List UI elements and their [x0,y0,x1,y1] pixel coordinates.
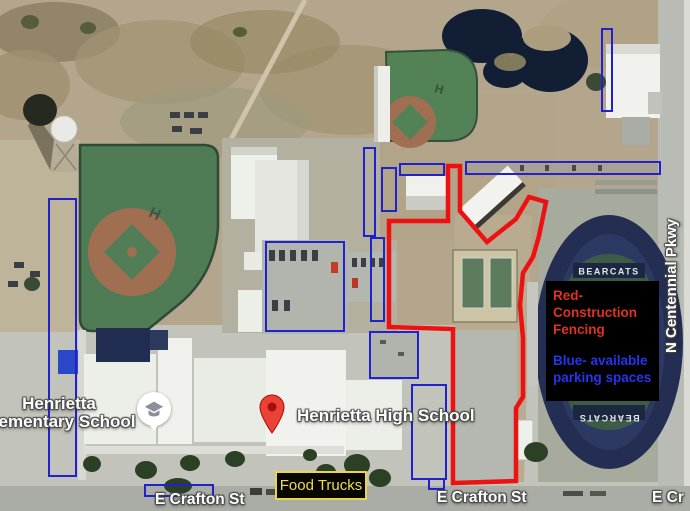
parking-annotation-rect [265,241,345,332]
parking-annotation-rect [601,28,613,112]
food-trucks-callout: Food Trucks [275,471,367,500]
parking-annotation-rect [411,384,447,480]
softball-field-north: H [374,50,477,148]
label-elementary-line2: Elementary School [0,413,139,431]
label-high-school[interactable]: Henrietta High School [297,406,475,426]
label-street-crafton-left: E Crafton St [155,491,245,509]
parking-annotation-rect [363,147,376,237]
parking-annotation-rect [381,167,397,212]
parking-annotation-rect [465,161,661,175]
label-street-centennial-pkwy: N Centennial Pkwy [663,183,680,353]
legend-red-text: Red- Construction Fencing [553,287,652,338]
stadium-endzone-text: BEARCATS [578,267,639,277]
label-street-crafton-edge: E Cr [652,489,684,507]
label-elementary-school[interactable]: Henrietta Elementary School [0,395,139,431]
parking-annotation-rect [370,237,385,322]
tennis-courts [453,250,517,322]
stadium-endzone-text: BEARCATS [578,413,639,423]
label-elementary-line1: Henrietta [0,395,139,413]
school-icon[interactable] [137,392,171,426]
parking-annotation-rect [48,198,77,477]
legend-box: Red- Construction Fencing Blue- availabl… [546,281,659,401]
satellite-imagery: H H BEARCATS BEARCATS [0,0,690,511]
parking-annotation-rect [399,163,445,176]
map-pin-icon[interactable] [259,394,285,434]
parking-annotation-rect [369,331,419,379]
label-street-crafton-right: E Crafton St [437,489,527,507]
satellite-map[interactable]: H H BEARCATS BEARCATS [0,0,690,511]
legend-blue-text: Blue- available parking spaces [553,352,652,386]
